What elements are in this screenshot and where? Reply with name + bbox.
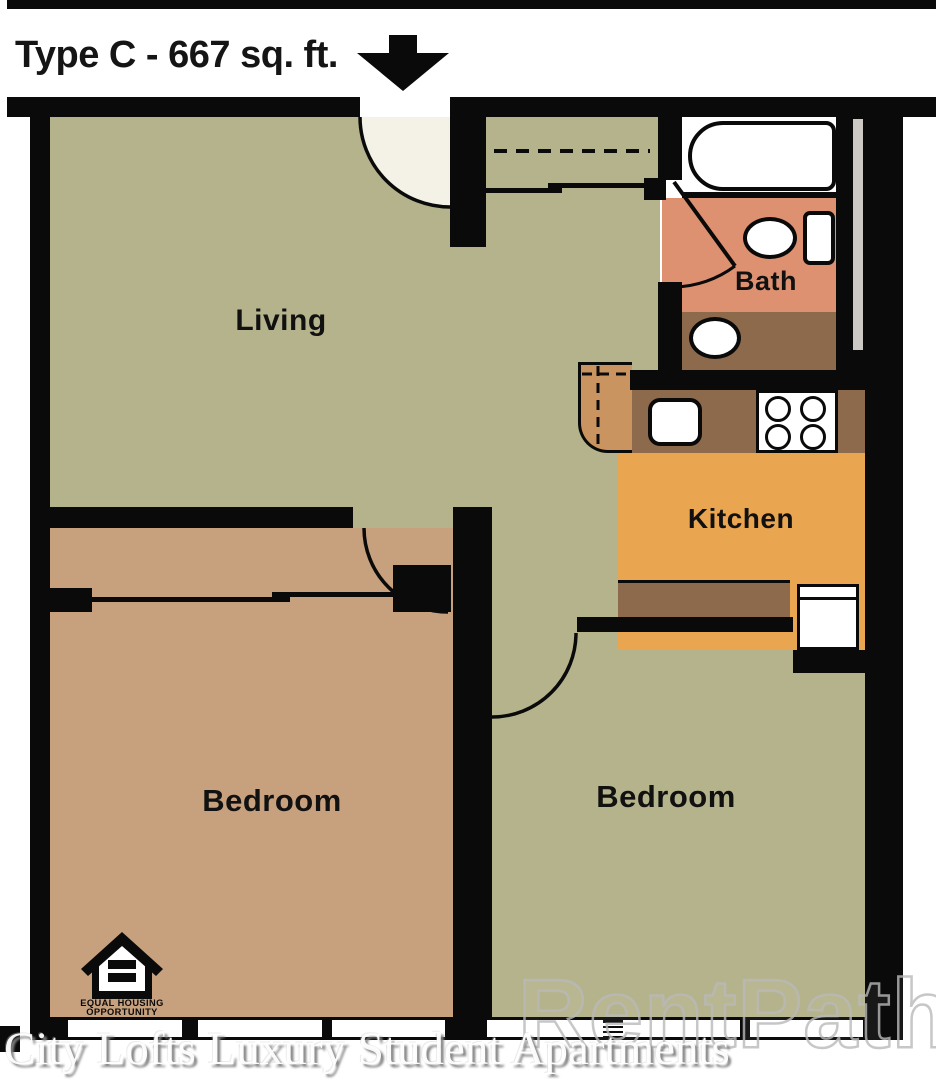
refrigerator-fixture xyxy=(797,584,859,650)
kitchen-label: Kitchen xyxy=(631,503,851,535)
kitchen-counter-bottom xyxy=(618,580,790,617)
stove-burner xyxy=(765,396,791,422)
toilet-tank xyxy=(803,211,835,265)
bath-label: Bath xyxy=(706,266,826,297)
stove-burner xyxy=(800,396,826,422)
kitchen-peninsula-counter xyxy=(578,362,632,453)
utility-chase xyxy=(853,119,863,350)
property-caption: City Lofts Luxury Student Apartments xyxy=(4,1022,730,1076)
closet-bypass-door-b xyxy=(548,183,648,188)
bedrooms-divider-wall xyxy=(453,507,492,1017)
living-room-label: Living xyxy=(196,304,366,338)
kitchen-sink xyxy=(648,398,702,446)
exterior-wall-right xyxy=(865,97,903,1040)
closet-bypass-door-a xyxy=(462,188,562,193)
entry-arrow-icon xyxy=(357,35,449,91)
bath-left-wall-lower xyxy=(658,282,682,370)
bath-left-wall-upper xyxy=(658,117,682,180)
plan-title: Type C - 667 sq. ft. xyxy=(15,34,338,77)
bedroom-closet-bypass-b xyxy=(272,592,394,597)
under-fridge-wall xyxy=(793,650,865,673)
bath-kitchen-wall xyxy=(630,370,865,390)
exterior-wall-top xyxy=(7,97,936,117)
bathtub-fixture xyxy=(688,121,836,191)
bedroom-left-label: Bedroom xyxy=(150,783,394,819)
stove-burner xyxy=(800,424,826,450)
bedroom-right-label: Bedroom xyxy=(544,779,788,815)
exterior-wall-left xyxy=(30,97,50,1040)
bedroom-left-door-floor xyxy=(353,507,453,528)
bedroom-closet-bypass-a xyxy=(90,597,290,602)
living-bedroom-wall xyxy=(48,507,353,528)
bedroom-right-top-wall xyxy=(577,617,793,632)
bath-sink xyxy=(689,317,741,359)
bedroom-closet-jamb-left xyxy=(48,588,92,612)
tub-base-line xyxy=(682,192,838,198)
refrigerator-handle-line xyxy=(800,597,856,600)
toilet-bowl xyxy=(743,217,797,259)
image-top-border xyxy=(7,0,936,9)
bedroom-closet-jamb-right xyxy=(393,565,451,612)
closet-jamb-right xyxy=(644,178,666,200)
stove-burner xyxy=(765,424,791,450)
floorplan-canvas: EQUAL HOUSING OPPORTUNITY Type C - 667 s… xyxy=(0,0,936,1080)
